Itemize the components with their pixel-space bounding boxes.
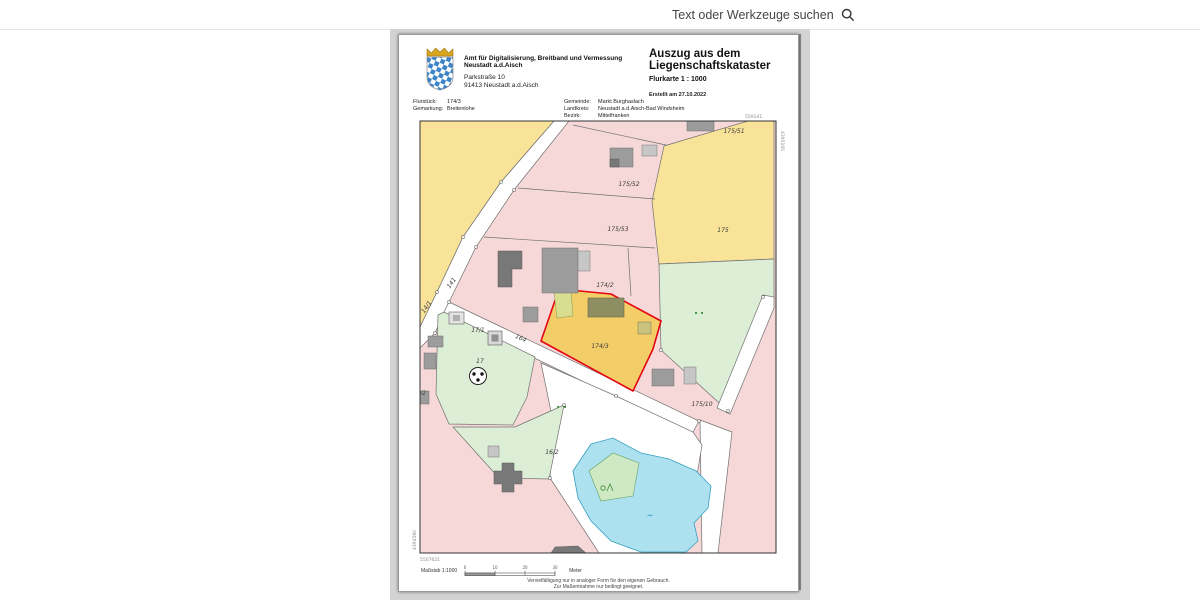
- map-label: 175: [717, 227, 729, 234]
- map-label: 174/2: [596, 282, 613, 289]
- document-page: Amt für Digitalisierung, Breitband und V…: [398, 34, 799, 592]
- map-label: 175/53: [607, 226, 628, 233]
- search-label: Text oder Werkzeuge suchen: [672, 8, 834, 22]
- svg-text:10: 10: [493, 565, 499, 570]
- svg-text:20: 20: [523, 565, 529, 570]
- map-label: 559141: [745, 114, 762, 120]
- scalebar-graphic: 0102030: [463, 564, 563, 578]
- office-address: Parkstraße 10 91413 Neustadt a.d.Aisch: [464, 74, 538, 89]
- svg-text:30: 30: [553, 565, 559, 570]
- issuing-office: Amt für Digitalisierung, Breitband und V…: [464, 55, 622, 69]
- map-label: 17: [476, 358, 484, 365]
- map-frame-content: [420, 121, 776, 553]
- cadastral-map: 175/51175/52175/53175174/2174/3175/1017/…: [411, 111, 791, 563]
- map-label: 5507621: [420, 557, 440, 563]
- map-label: 17/1: [471, 327, 484, 334]
- map-label: 175/52: [618, 181, 639, 188]
- creation-date: Erstellt am 27.10.2022: [649, 92, 706, 98]
- map-label: ~: [647, 511, 654, 520]
- footer-note: Vervielfältigung nur in analoger Form fü…: [399, 578, 798, 590]
- map-label: /2: [419, 390, 426, 397]
- map-label: 175/51: [723, 128, 744, 135]
- map-label: 16/2: [545, 449, 559, 456]
- map-label: 4394560: [412, 530, 418, 550]
- svg-text:0: 0: [464, 565, 467, 570]
- scalebar-label: Maßstab 1:1000: [421, 568, 457, 574]
- search-control[interactable]: Text oder Werkzeuge suchen: [672, 0, 855, 29]
- garden-patch: [554, 290, 573, 318]
- bavaria-crest-icon: [423, 45, 457, 99]
- document-title: Auszug aus dem Liegenschaftskataster: [649, 48, 770, 72]
- map-label: 175/10: [691, 401, 712, 408]
- map-label: 174/3: [591, 343, 608, 350]
- tree-symbol-icon: [470, 368, 487, 385]
- scalebar: Maßstab 1:1000 0102030 Meter: [421, 564, 582, 578]
- map-label: 4395105: [779, 131, 785, 151]
- scalebar-unit: Meter: [569, 568, 582, 574]
- search-icon: [841, 8, 855, 22]
- pdf-viewer: Amt für Digitalisierung, Breitband und V…: [390, 29, 810, 600]
- map-scale-subtitle: Flurkarte 1 : 1000: [649, 76, 707, 83]
- toolbar: Text oder Werkzeuge suchen: [0, 0, 1200, 30]
